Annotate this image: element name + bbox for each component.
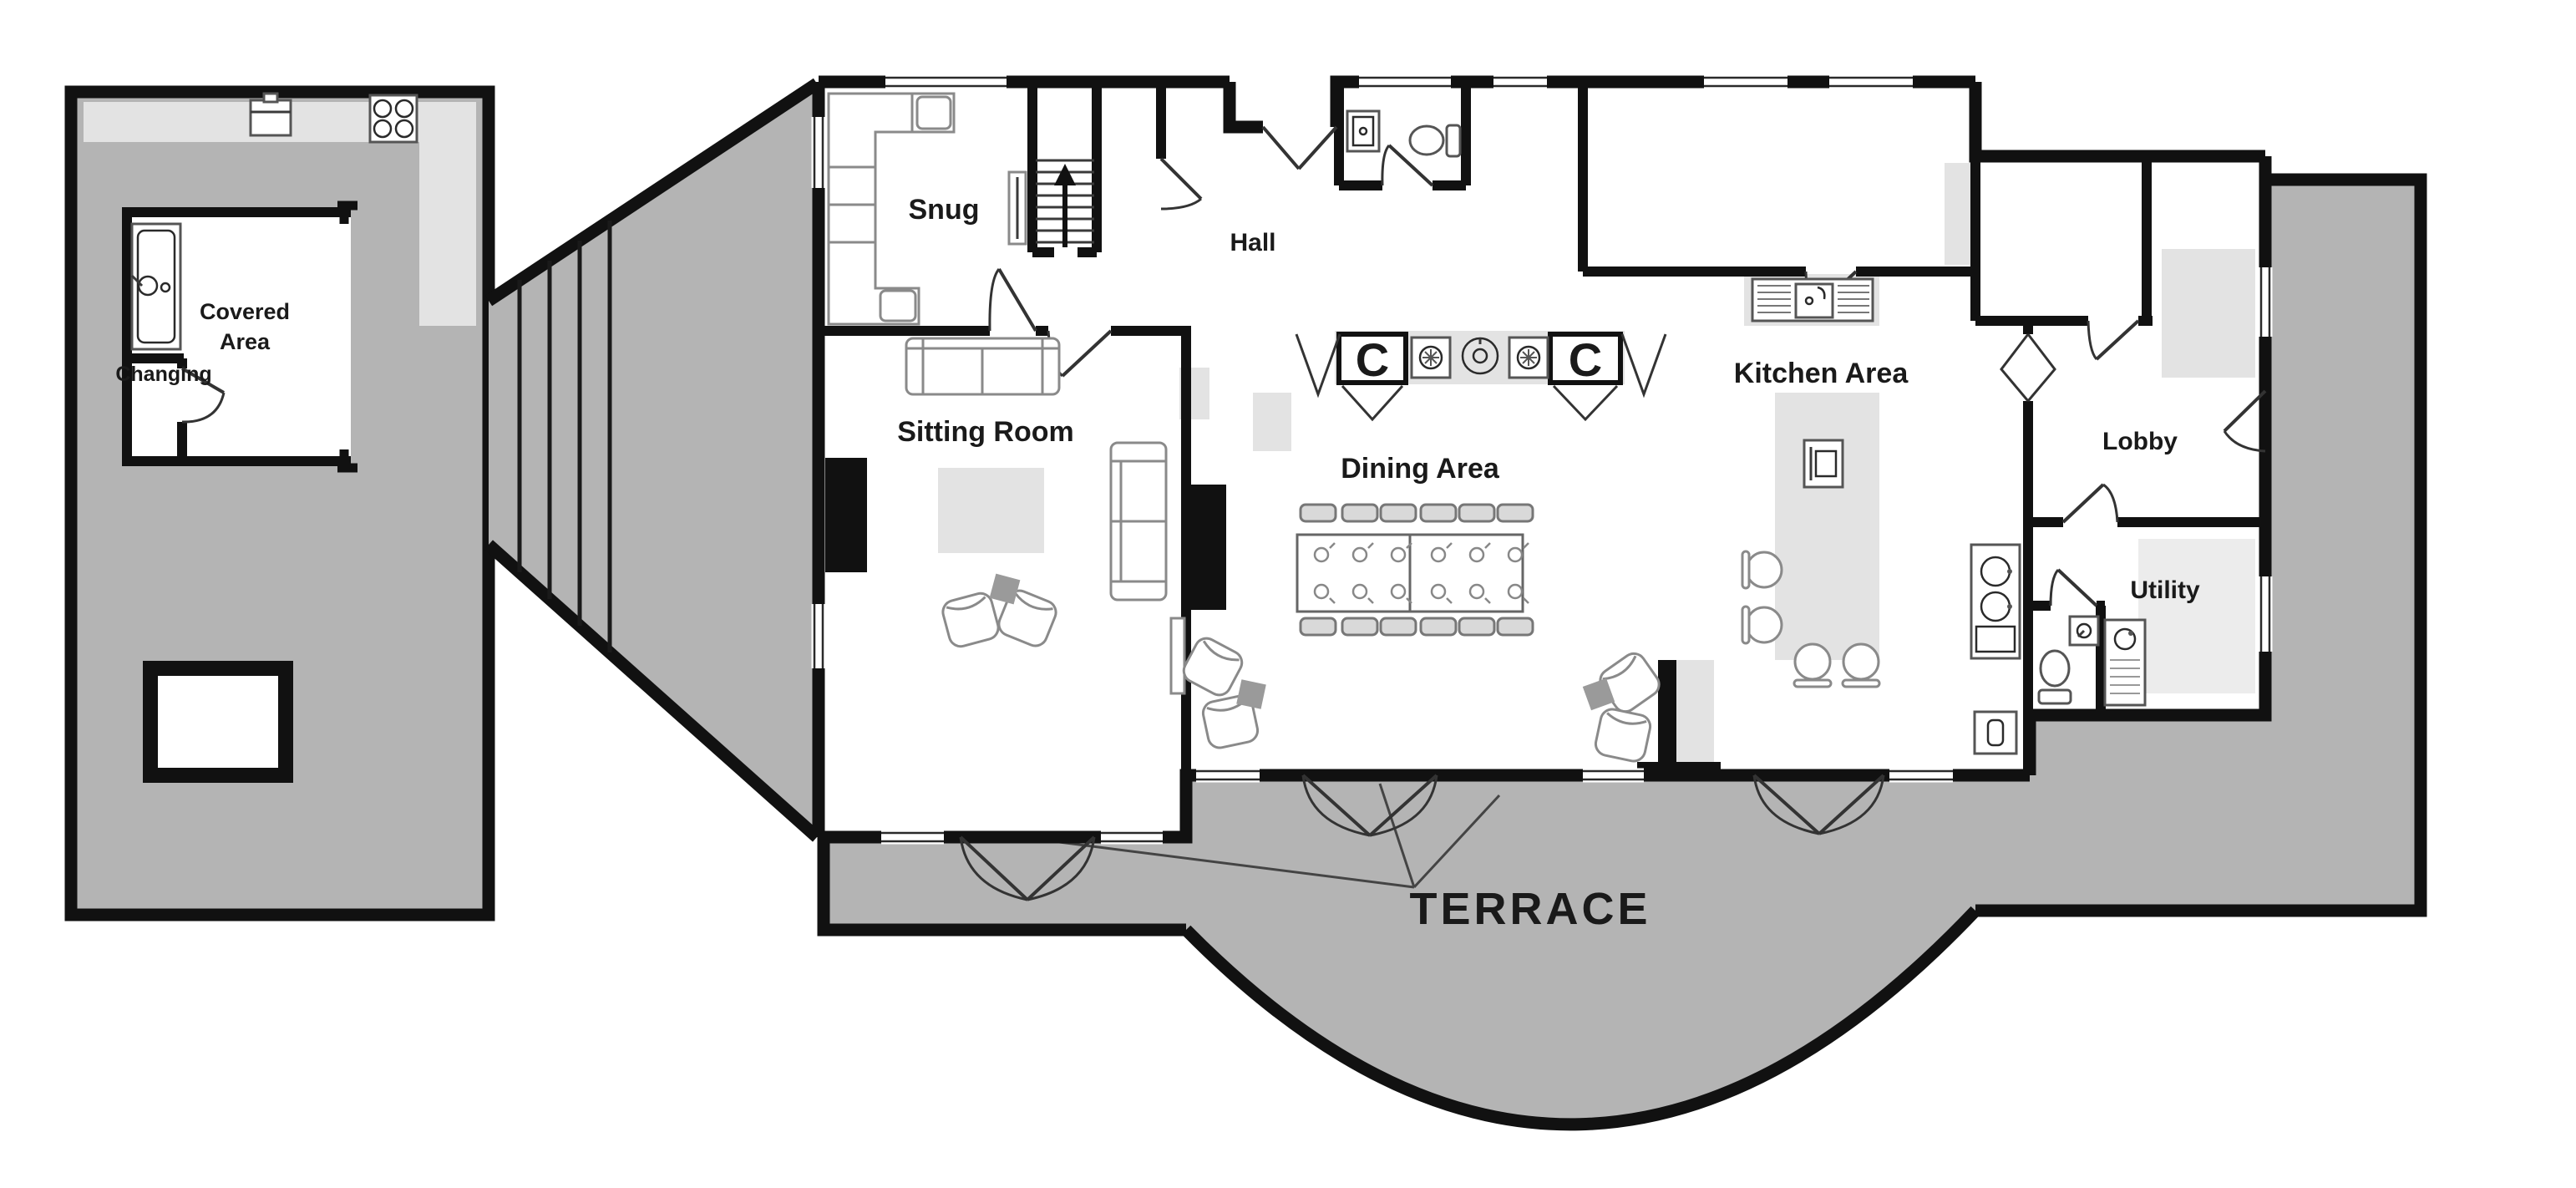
- side-table: [1236, 679, 1266, 709]
- window: [1829, 78, 1913, 86]
- lobby-label: Lobby: [2102, 428, 2178, 455]
- armchair: [1594, 707, 1652, 763]
- bar-stool: [1794, 644, 1831, 687]
- outdoor-counter-right: [419, 102, 476, 326]
- window: [814, 117, 823, 188]
- corner-sink-icon: [2070, 617, 2098, 645]
- lobby-mat: [2162, 249, 2255, 378]
- shower-icon: [132, 224, 180, 349]
- window: [1196, 771, 1260, 779]
- bbq-grill-icon: [251, 94, 291, 135]
- utility-label: Utility: [2130, 576, 2200, 604]
- window: [2261, 576, 2269, 652]
- dining-accent: [1253, 393, 1291, 451]
- kitchen-area-label: Kitchen Area: [1734, 358, 1909, 389]
- sink-icon: [1347, 111, 1379, 151]
- floor-plan-canvas: Covered Area Changing TERRACE: [0, 0, 2576, 1188]
- cupboard-right-label: C: [1569, 333, 1602, 386]
- window: [1101, 833, 1163, 841]
- covered-area-room: Covered Area Changing: [115, 206, 357, 468]
- bar-stool: [1742, 551, 1782, 588]
- sitting-room-rug: [938, 468, 1044, 553]
- dishwasher-icon: [1975, 712, 2016, 754]
- kitchen-sink-icon: [1752, 279, 1873, 321]
- window: [1889, 771, 1953, 779]
- window: [814, 604, 823, 668]
- hall-accent: [1945, 163, 1973, 265]
- connector-steps: [489, 84, 817, 837]
- kitchen-island: [1775, 393, 1879, 660]
- fireplace-sitting-left: [825, 458, 867, 572]
- window: [885, 78, 1007, 86]
- dining-area-label: Dining Area: [1341, 453, 1500, 485]
- washing-machine-icon: [2105, 620, 2145, 705]
- floor-plan-page: Covered Area Changing TERRACE: [0, 0, 2576, 1188]
- window: [1583, 771, 1644, 779]
- terrace-label: TERRACE: [1409, 884, 1651, 934]
- fireplace-dining-west: [1186, 485, 1226, 610]
- utility-mat: [2138, 539, 2255, 693]
- toilet-icon: [1410, 125, 1460, 156]
- snug-label: Snug: [909, 194, 980, 226]
- pool: [150, 668, 286, 775]
- pillar-dining-kitchen: [1658, 660, 1676, 770]
- pillar-base: [1637, 762, 1721, 777]
- window: [1704, 78, 1787, 86]
- bar-stool: [1843, 644, 1879, 687]
- washing-machine-icon: [1509, 338, 1548, 378]
- radiator: [1171, 618, 1184, 693]
- fridge-icon: [1804, 440, 1843, 487]
- window: [1359, 78, 1451, 86]
- bar-stool: [1742, 607, 1782, 643]
- changing-label: Changing: [115, 363, 211, 386]
- sitting-room-label: Sitting Room: [897, 416, 1074, 448]
- dining-chimney-breast: [1675, 660, 1714, 770]
- covered-area-label-2: Area: [220, 329, 271, 354]
- cooktop-oven-icon: [1971, 545, 2020, 658]
- window: [2261, 267, 2269, 337]
- cupboard-left-label: C: [1356, 333, 1389, 386]
- toilet-icon: [2039, 651, 2071, 703]
- covered-area-label-1: Covered: [200, 299, 290, 324]
- window: [881, 833, 944, 841]
- window: [1493, 78, 1547, 86]
- pool-deck-area: Covered Area Changing: [71, 92, 489, 915]
- outdoor-hob-icon: [370, 95, 417, 142]
- washing-machine-icon: [1412, 338, 1450, 378]
- hall-label: Hall: [1230, 229, 1275, 256]
